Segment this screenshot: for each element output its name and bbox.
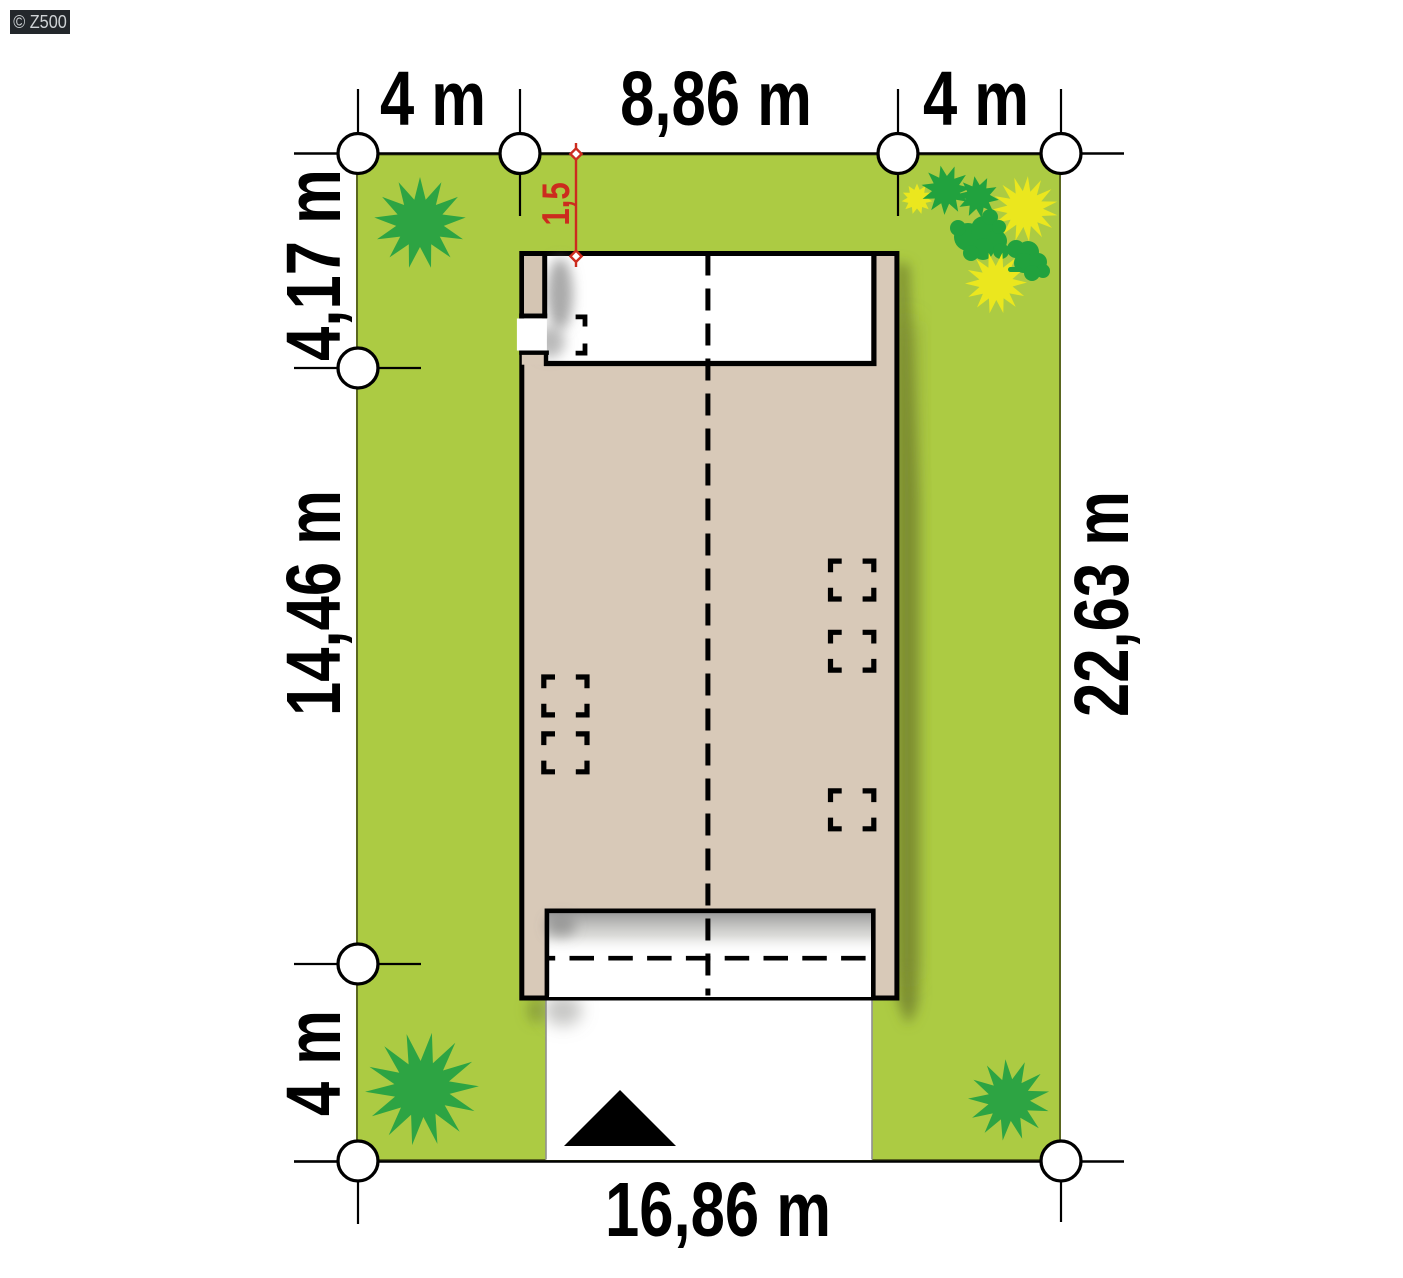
- svg-text:14,46 m: 14,46 m: [270, 490, 356, 716]
- svg-text:© Z500: © Z500: [13, 11, 67, 32]
- svg-text:4 m: 4 m: [923, 55, 1029, 141]
- svg-text:22,63 m: 22,63 m: [1058, 491, 1144, 717]
- svg-text:4 m: 4 m: [270, 1010, 356, 1116]
- svg-text:16,86 m: 16,86 m: [605, 1166, 831, 1252]
- svg-text:4 m: 4 m: [380, 55, 486, 141]
- svg-text:8,86 m: 8,86 m: [620, 55, 812, 141]
- svg-text:4,17 m: 4,17 m: [270, 169, 356, 361]
- svg-text:1,5: 1,5: [535, 182, 578, 225]
